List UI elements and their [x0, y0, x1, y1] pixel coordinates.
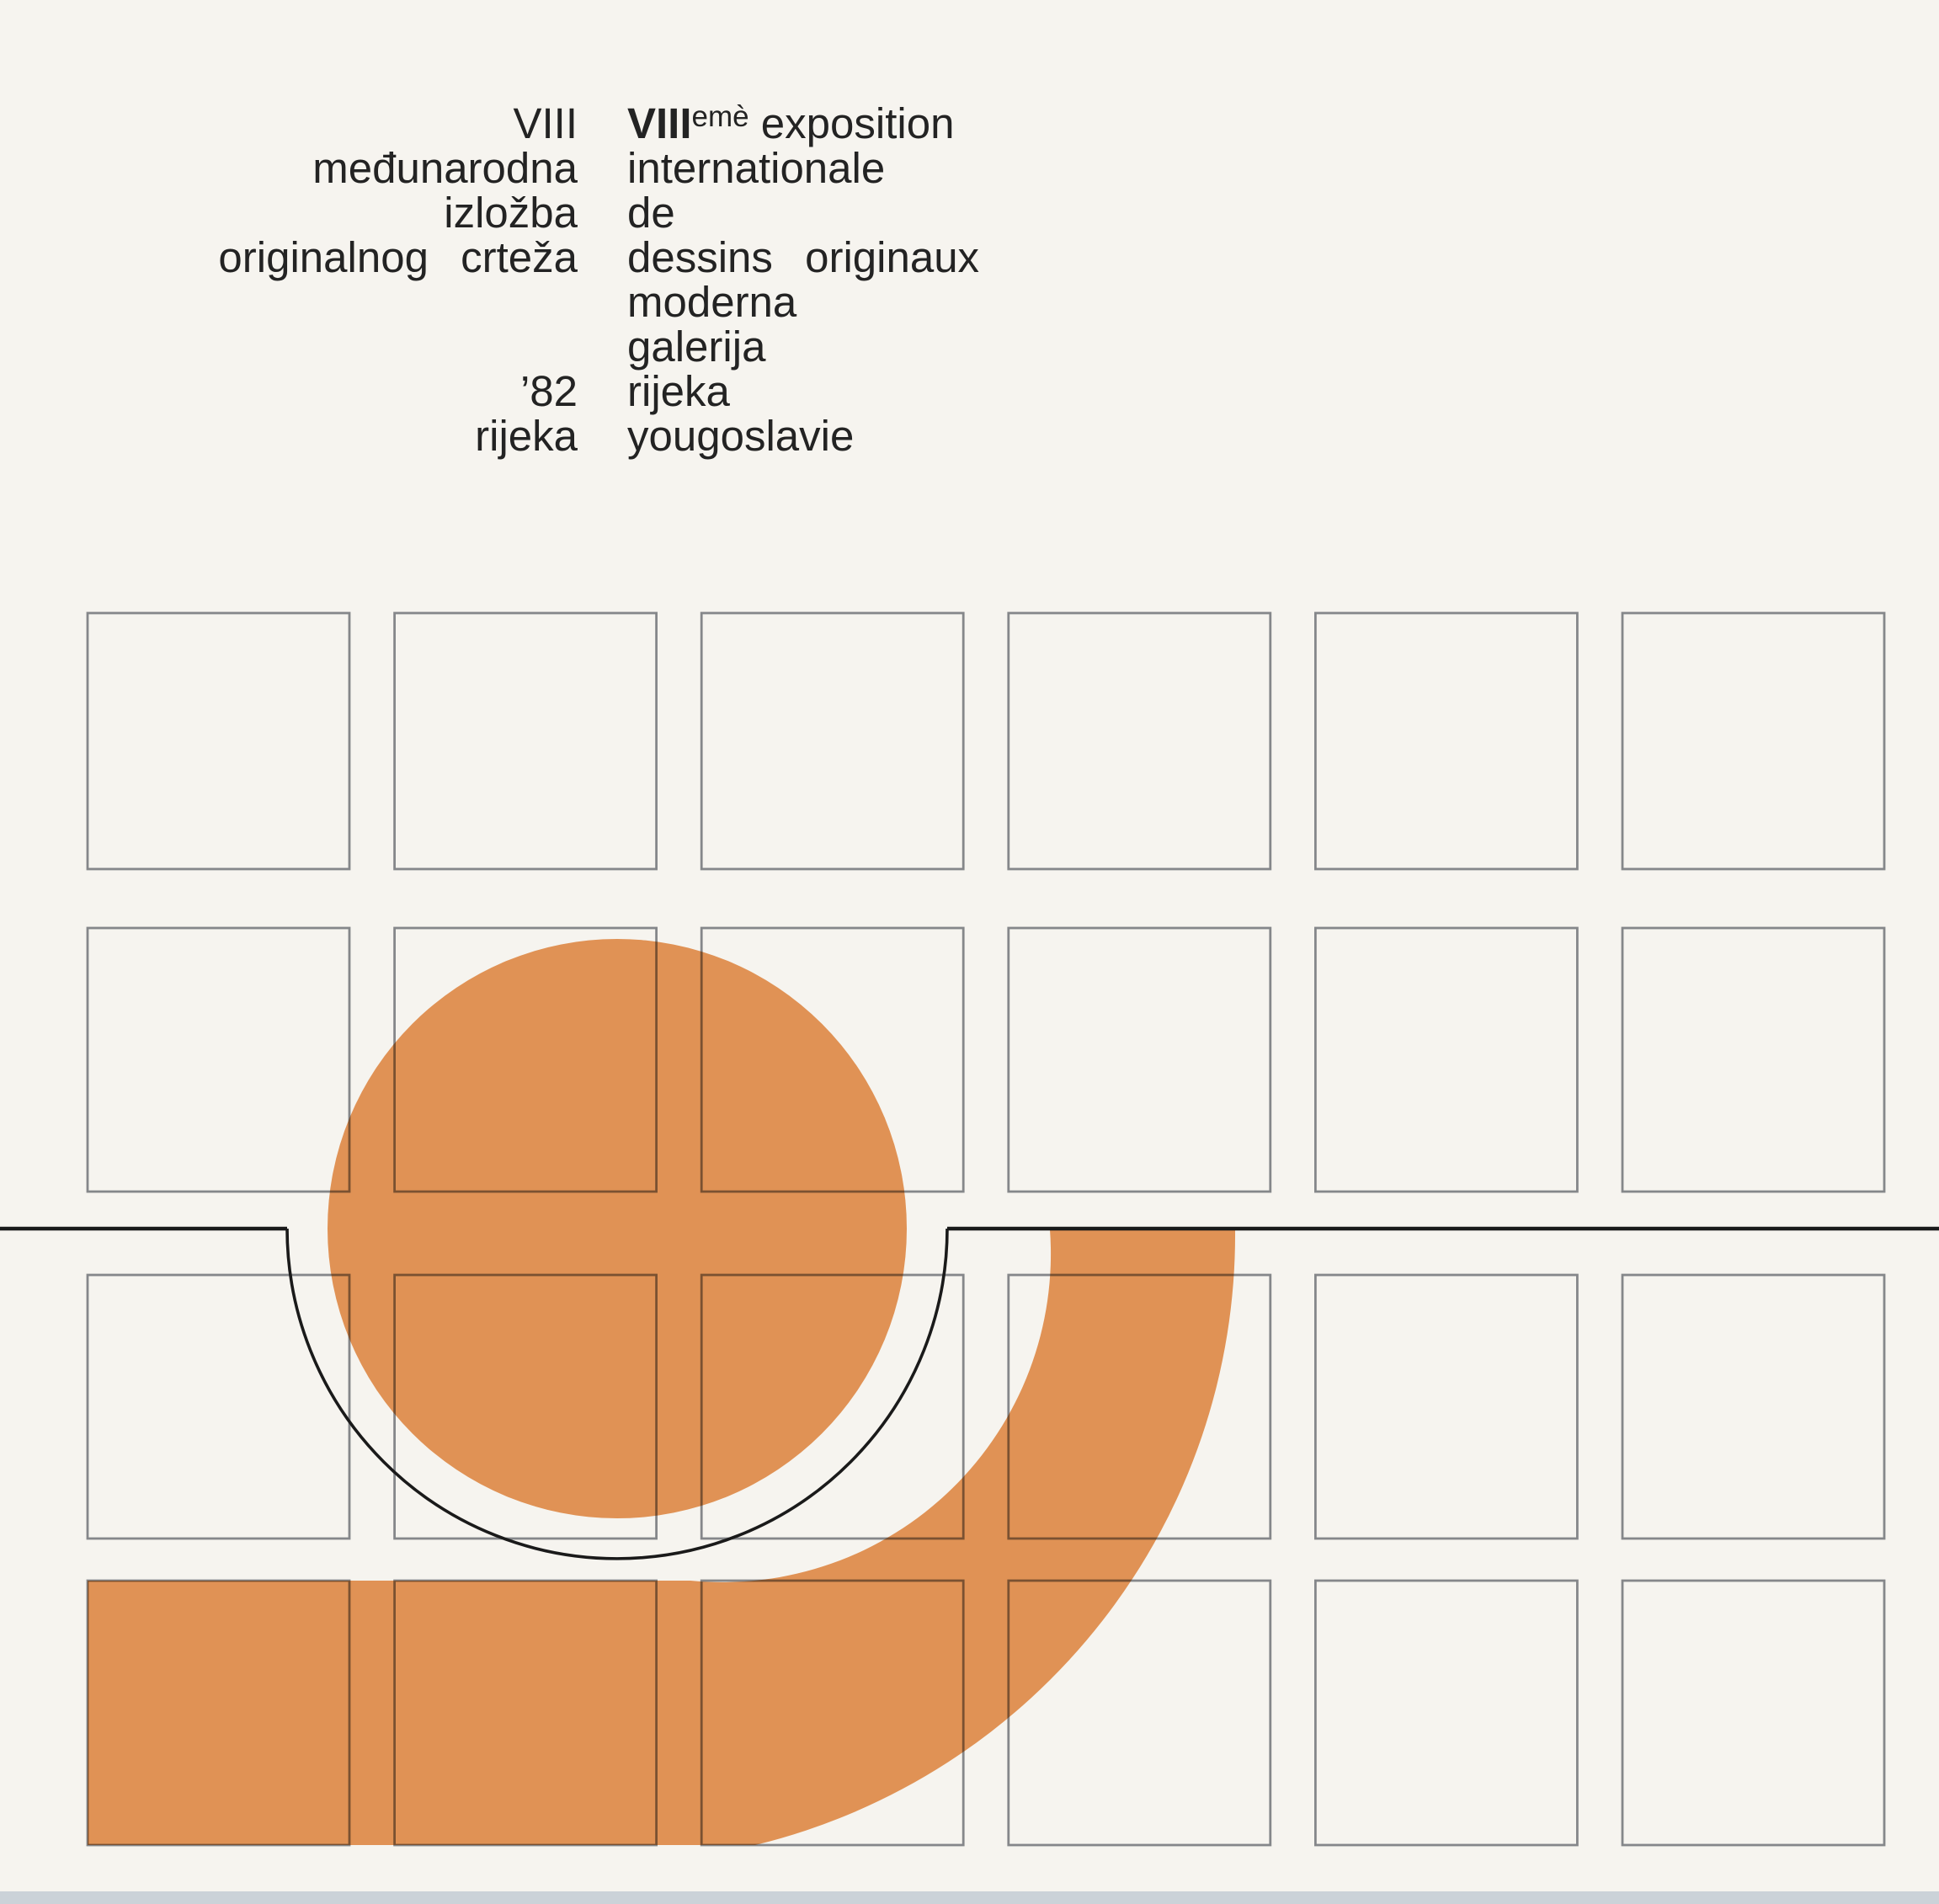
svg-text:internationale: internationale [627, 144, 885, 192]
svg-text:yougoslavie: yougoslavie [627, 412, 854, 460]
svg-text:VIII: VIII [513, 99, 578, 147]
svg-text:međunarodna: međunarodna [312, 144, 578, 192]
svg-text:galerija: galerija [627, 323, 766, 371]
svg-text:izložba: izložba [444, 189, 578, 237]
svg-text:de: de [627, 189, 675, 237]
svg-text:’82: ’82 [520, 367, 578, 415]
svg-text:dessins originaux: dessins originaux [627, 233, 979, 281]
svg-text:moderna: moderna [627, 278, 797, 326]
svg-text:originalnog crteža: originalnog crteža [218, 233, 578, 281]
svg-text:VIIIemè exposition: VIIIemè exposition [627, 99, 954, 147]
svg-text:rijeka: rijeka [475, 412, 578, 460]
svg-text:rijeka: rijeka [627, 367, 731, 415]
